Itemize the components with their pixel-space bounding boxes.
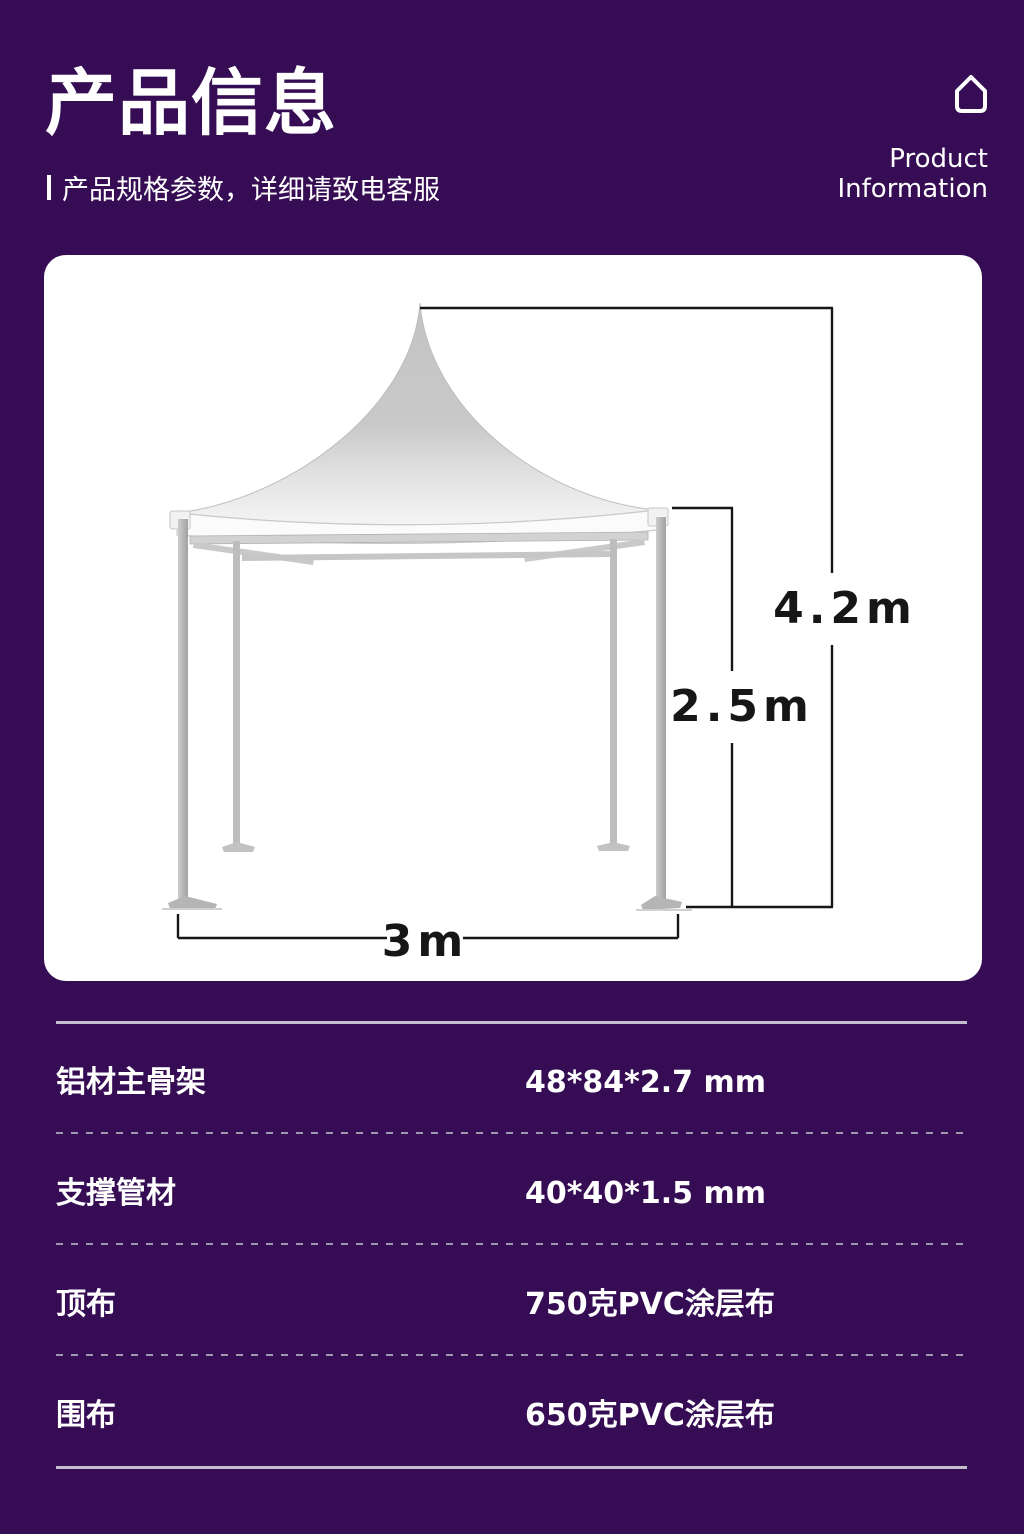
header-right-text: Product Information xyxy=(837,144,988,204)
page-title: 产品信息 xyxy=(45,62,337,145)
subtitle-text: 产品规格参数，详细请致电客服 xyxy=(62,168,440,207)
spec-row: 围布 650克PVC涂层布 xyxy=(0,1395,1024,1437)
spec-row: 支撑管材 40*40*1.5 mm xyxy=(0,1173,1024,1215)
spec-row: 顶布 750克PVC涂层布 xyxy=(0,1284,1024,1326)
spec-row: 铝材主骨架 48*84*2.7 mm xyxy=(0,1062,1024,1104)
table-divider-dotted xyxy=(56,1243,967,1245)
product-info-page: 产品信息 产品规格参数，详细请致电客服 Product Information xyxy=(0,0,1024,1534)
subtitle-bar xyxy=(47,175,51,200)
header-right-line2: Information xyxy=(837,174,988,204)
dim-total-height-label: 4.2m xyxy=(773,583,917,634)
tent-legs xyxy=(162,517,692,910)
table-rule-bottom xyxy=(56,1466,967,1469)
tent-diagram: 4.2m 2.5m 3m xyxy=(44,255,982,981)
spec-label: 顶布 xyxy=(56,1284,116,1326)
spec-value: 650克PVC涂层布 xyxy=(525,1395,775,1437)
dim-leg-height-label: 2.5m xyxy=(670,681,814,732)
page-subtitle: 产品规格参数，详细请致电客服 xyxy=(47,168,440,207)
diagram-card: 4.2m 2.5m 3m xyxy=(44,255,982,981)
table-divider-dotted xyxy=(56,1132,967,1134)
table-rule-top xyxy=(56,1021,967,1024)
home-icon xyxy=(954,74,988,114)
spec-value: 48*84*2.7 mm xyxy=(525,1062,766,1104)
spec-label: 铝材主骨架 xyxy=(56,1062,206,1104)
tent-roof xyxy=(177,303,657,543)
dimension-lines xyxy=(178,308,833,938)
header-right: Product Information xyxy=(837,74,988,204)
dim-width-label: 3m xyxy=(382,916,468,967)
spec-label: 围布 xyxy=(56,1395,116,1437)
spec-value: 750克PVC涂层布 xyxy=(525,1284,775,1326)
table-divider-dotted xyxy=(56,1354,967,1356)
spec-label: 支撑管材 xyxy=(56,1173,176,1215)
header-right-line1: Product xyxy=(837,144,988,174)
spec-value: 40*40*1.5 mm xyxy=(525,1173,766,1215)
